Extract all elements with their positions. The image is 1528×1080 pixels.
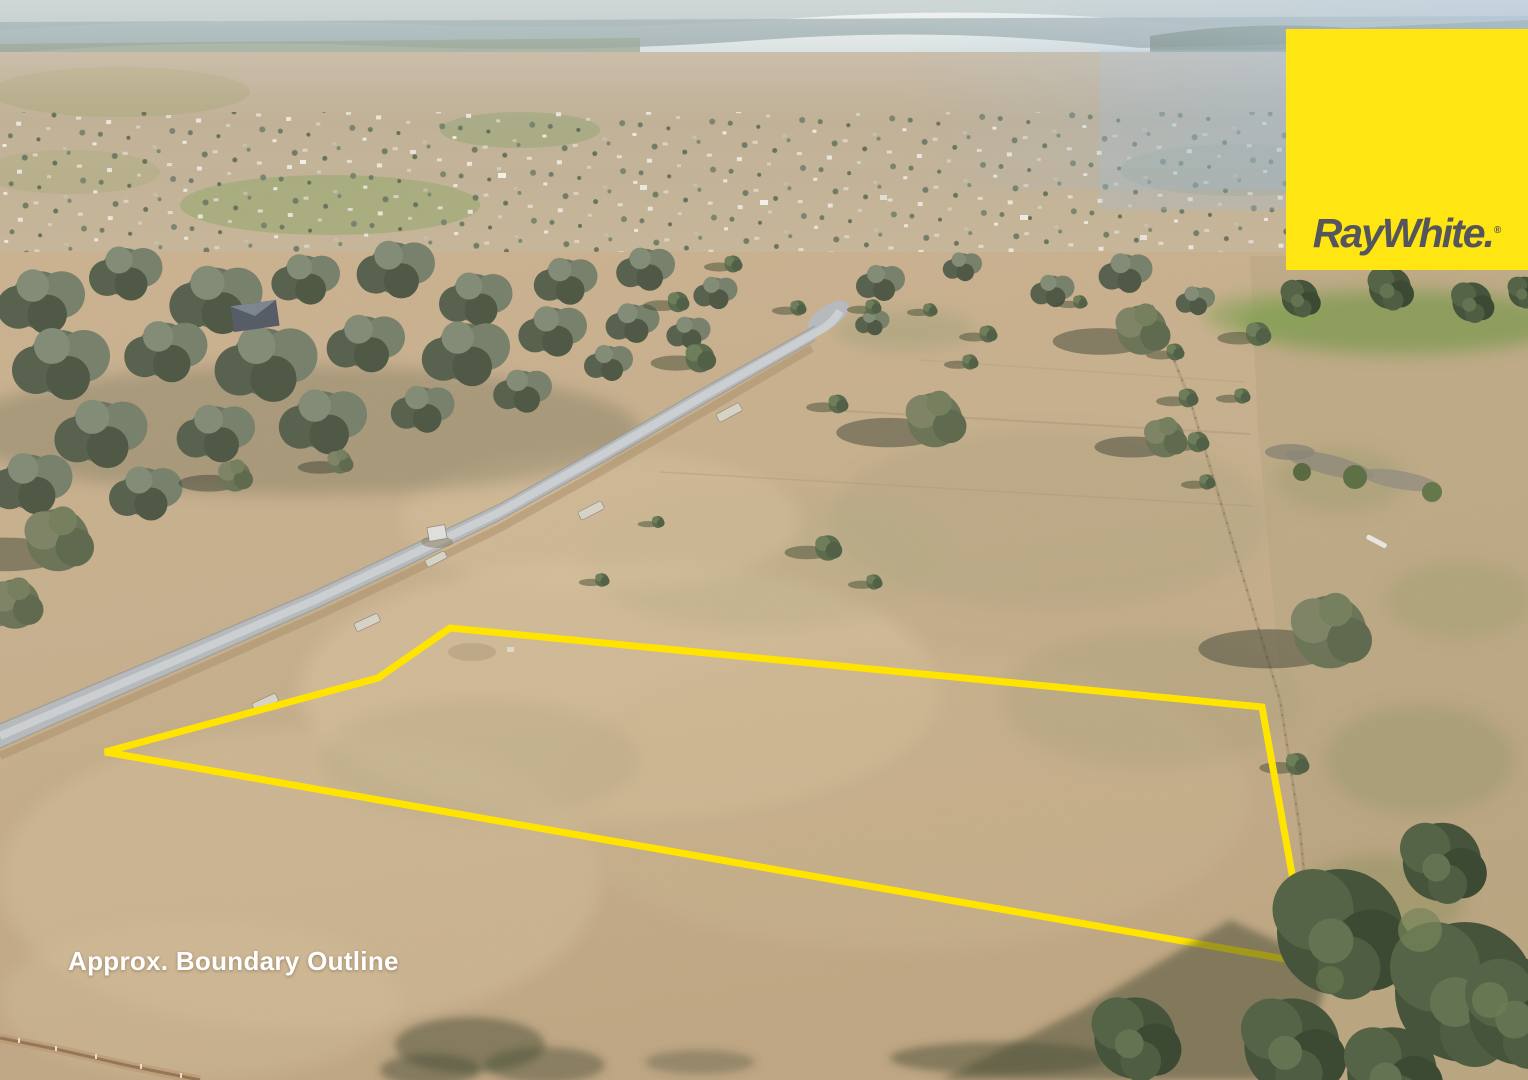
raywhite-logo: RayWhite. ®	[1286, 29, 1528, 270]
ground-marker	[507, 647, 514, 652]
raywhite-logo-text: RayWhite.	[1313, 213, 1493, 254]
aerial-photo: Approx. Boundary Outline RayWhite. ®	[0, 0, 1528, 1080]
boundary-caption: Approx. Boundary Outline	[68, 946, 399, 977]
registered-trademark-icon: ®	[1494, 226, 1501, 236]
